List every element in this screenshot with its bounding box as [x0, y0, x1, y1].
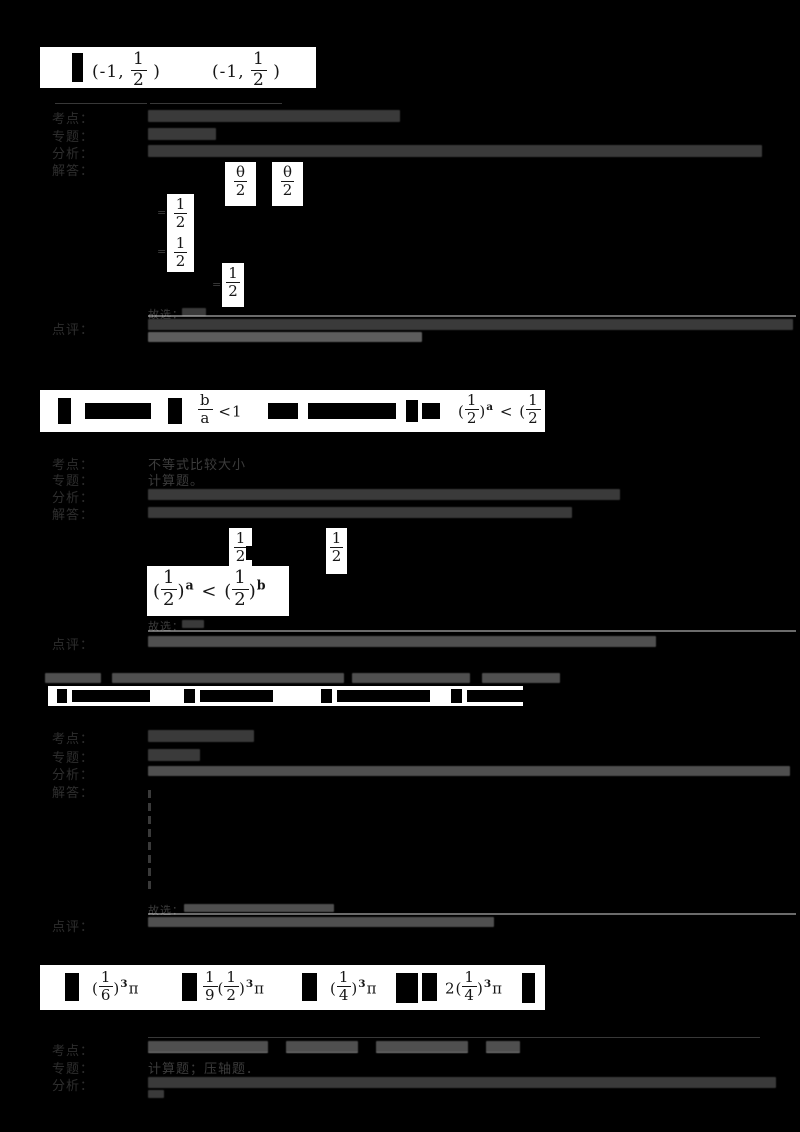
- redacted-line-start: [148, 829, 151, 837]
- redacted-option-a-label: [57, 689, 67, 703]
- paren-close: ): [153, 62, 161, 82]
- exponent: 3: [246, 978, 254, 990]
- row-label-kaodian: 考点：: [52, 108, 94, 127]
- q1-answer-pair-2: (-1, 12 ): [212, 50, 281, 88]
- redacted-option-d-label: [422, 973, 437, 1001]
- q2-half-fraction-1: 12: [229, 528, 252, 570]
- equals-remnant: =: [157, 206, 167, 219]
- q1-half-fraction-1: 12: [167, 194, 194, 234]
- redacted-text-bar: [246, 546, 252, 560]
- table-border: [148, 630, 796, 632]
- q1-half-fraction-3: 12: [222, 263, 244, 307]
- paren-close: ): [239, 980, 246, 998]
- redacted-line-start: [148, 855, 151, 863]
- redacted-topic-link[interactable]: [376, 1041, 468, 1053]
- row-label-dianping: 点评：: [52, 916, 94, 935]
- equals-remnant: =: [212, 278, 222, 291]
- paren-open: (: [218, 980, 225, 998]
- redacted-option-c-label: [302, 973, 317, 1001]
- row-label-dianping: 点评：: [52, 634, 94, 653]
- redacted-option-d-label: [422, 403, 440, 419]
- relation: <: [201, 581, 217, 602]
- row-label-fenxi: 分析：: [52, 764, 94, 783]
- redacted-fenxi-text: [148, 489, 620, 500]
- redacted-line-start: [148, 842, 151, 850]
- row-label-jieda: 解答：: [52, 160, 94, 179]
- row-label-jieda: 解答：: [52, 782, 94, 801]
- paren-open: (-1,: [92, 62, 125, 82]
- q2-solution-formula: (12)a < (12)b: [147, 566, 289, 616]
- exponent: 3: [358, 978, 366, 990]
- q3-choose-remnant: 故选：: [148, 902, 184, 918]
- document-page: (-1, 12 ) (-1, 12 ) 考点： 专题： 分析： 解答： θ2 θ…: [0, 0, 800, 1132]
- redacted-option-a-text: [72, 690, 150, 702]
- exponent: a: [486, 401, 494, 413]
- row-label-fenxi: 分析：: [52, 1075, 94, 1094]
- paren-open: (: [224, 581, 232, 602]
- redacted-fenxi-text: [148, 145, 762, 157]
- redacted-line-start: [148, 790, 151, 798]
- redacted-option-c-text: [308, 403, 396, 419]
- redacted-topic-link[interactable]: [286, 1041, 358, 1053]
- redacted-line-start: [148, 868, 151, 876]
- q1-theta-fraction-2: θ2: [272, 162, 303, 206]
- table-border: [55, 103, 147, 104]
- inequality-formula: (12)a < (12)b: [153, 581, 267, 602]
- fraction: 19: [203, 969, 218, 1005]
- q1-answer-pair-1: (-1, 12 ): [92, 50, 161, 88]
- row-label-kaodian: 考点：: [52, 728, 94, 747]
- redacted-question-text: [45, 673, 101, 683]
- row-label-jieda: 解答：: [52, 504, 94, 523]
- q4-option-a-formula: (16)3π: [92, 969, 139, 1005]
- table-border: [148, 1037, 760, 1038]
- equals-remnant: =: [157, 245, 167, 258]
- fraction: 14: [337, 969, 352, 1005]
- redacted-fenxi-text: [148, 766, 790, 776]
- fraction: 12: [465, 392, 480, 428]
- paren-open: (-1,: [212, 62, 245, 82]
- pi-symbol: π: [254, 980, 265, 998]
- redacted-option-d-label: [451, 689, 462, 703]
- redacted-option-c-label: [321, 689, 332, 703]
- coefficient: 2: [445, 980, 456, 998]
- redacted-line-start: [148, 881, 151, 889]
- redacted-text-bar: [406, 400, 418, 422]
- paren-open: (: [153, 581, 161, 602]
- redacted-question-text: [352, 673, 470, 683]
- redacted-option-a-text: [85, 403, 151, 419]
- redacted-zhuanti-text: [148, 128, 216, 140]
- fraction: ba: [198, 392, 213, 428]
- pi-symbol: π: [492, 980, 503, 998]
- exponent: 3: [484, 978, 492, 990]
- paren-close: ): [249, 581, 257, 602]
- redacted-option-a-label: [65, 973, 79, 1001]
- redacted-choice: [182, 620, 204, 628]
- redacted-text-bar: [72, 53, 83, 82]
- q4-options-panel: (16)3π 19(12)3π (14)3π 2(14)3π: [40, 965, 545, 1010]
- fraction: 12: [224, 969, 239, 1005]
- relation: <: [500, 403, 514, 421]
- fraction: 16: [99, 969, 114, 1005]
- redacted-question-text: [112, 673, 344, 683]
- paren-close: ): [177, 581, 185, 602]
- redacted-option-b-text: [200, 690, 273, 702]
- fraction: 12: [232, 568, 248, 610]
- redacted-dianping-text-2: [148, 332, 422, 342]
- paren-close: ): [273, 62, 281, 82]
- redacted-jieda-line: [148, 507, 572, 518]
- exponent: b: [257, 577, 267, 592]
- redacted-option-b-label: [182, 973, 197, 1001]
- table-border: [148, 315, 796, 317]
- table-border: [150, 103, 282, 104]
- q2-option-d-formula: (12)a < (12: [458, 392, 541, 428]
- redacted-zhuanti-text: [148, 749, 200, 761]
- q2-option-b-formula: ba <1: [198, 392, 243, 428]
- redacted-kaodian-text: [148, 110, 400, 122]
- row-label-kaodian: 考点：: [52, 1040, 94, 1059]
- fraction: 12: [526, 392, 541, 428]
- pi-symbol: π: [129, 980, 140, 998]
- fraction: 14: [462, 969, 477, 1005]
- paren-open: (: [330, 980, 337, 998]
- redacted-topic-link[interactable]: [486, 1041, 520, 1053]
- q2-zhuanti-text: 计算题。: [148, 470, 204, 489]
- redacted-dianping-text: [148, 917, 494, 927]
- redacted-kaodian-text: [148, 730, 254, 742]
- redacted-option-b-label: [168, 398, 182, 424]
- q4-option-c-formula: (14)3π: [330, 969, 377, 1005]
- redacted-choice: [184, 904, 334, 912]
- q3-options-strip: [48, 686, 523, 706]
- redacted-dianping-text: [148, 636, 656, 647]
- redacted-option-d-text: [467, 690, 523, 702]
- q2-options-panel: ba <1 (12)a < (12: [40, 390, 545, 432]
- row-label-dianping: 点评：: [52, 319, 94, 338]
- redacted-line-start: [148, 816, 151, 824]
- redacted-option-c-text: [337, 690, 430, 702]
- redacted-text-bar: [396, 973, 418, 1003]
- exponent: 3: [120, 978, 128, 990]
- relation: <1: [218, 403, 242, 421]
- redacted-fenxi-text: [148, 1077, 776, 1088]
- q4-option-d-formula: 2(14)3π: [445, 969, 503, 1005]
- redacted-dianping-text: [148, 319, 793, 330]
- redacted-text-bar: [522, 973, 535, 1003]
- redacted-topic-link[interactable]: [148, 1041, 268, 1053]
- pi-symbol: π: [367, 980, 378, 998]
- fraction: 12: [161, 568, 177, 610]
- q1-theta-fraction-1: θ2: [225, 162, 256, 206]
- table-border: [148, 913, 796, 915]
- q1-half-fraction-2: 12: [167, 233, 194, 272]
- redacted-line-start: [148, 803, 151, 811]
- paren-close: ): [477, 980, 484, 998]
- q4-zhuanti-text: 计算题；压轴题．: [148, 1058, 260, 1077]
- redacted-option-c-label: [268, 403, 298, 419]
- q1-answer-panel: (-1, 12 ) (-1, 12 ): [40, 47, 316, 88]
- redacted-question-text: [482, 673, 560, 683]
- paren-open: (: [456, 980, 463, 998]
- redacted-option-a-label: [58, 398, 71, 424]
- fraction: 12: [251, 50, 267, 88]
- exponent: a: [186, 577, 195, 592]
- redacted-option-b-label: [184, 689, 195, 703]
- paren-open: (: [92, 980, 99, 998]
- paren-open: (: [458, 403, 465, 421]
- redacted-fenxi-text-2: [148, 1090, 164, 1098]
- q4-option-b-formula: 19(12)3π: [203, 969, 265, 1005]
- q2-half-fraction-2: 12: [326, 528, 347, 574]
- paren-open: (: [519, 403, 526, 421]
- fraction: 12: [131, 50, 147, 88]
